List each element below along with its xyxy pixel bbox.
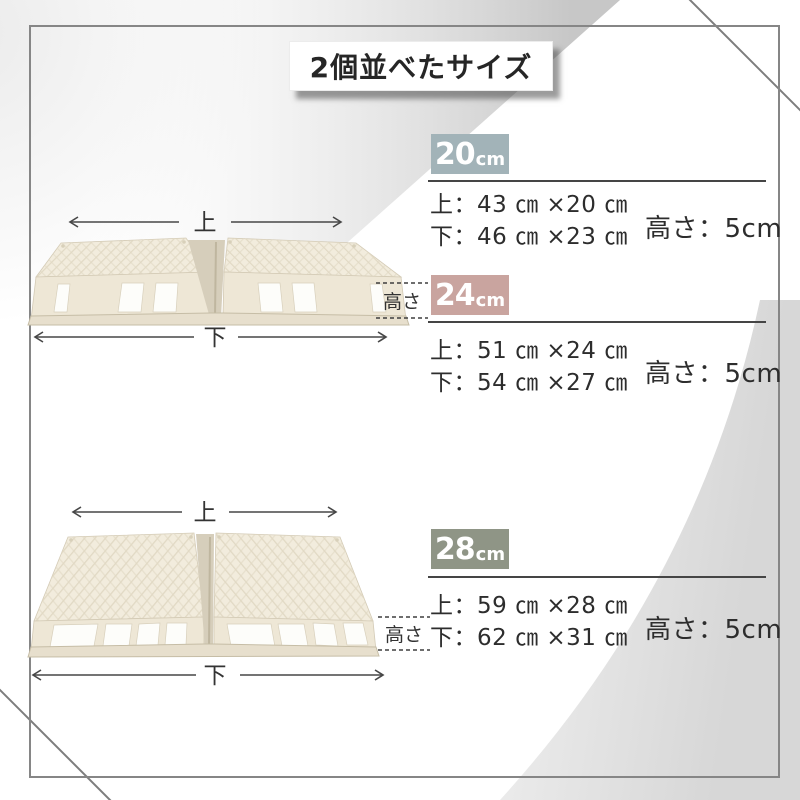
height-text-28cm: 高さ：5cm: [645, 609, 782, 646]
top-dimension-text: 上：51 ㎝ ×24 ㎝: [430, 335, 628, 367]
title-box: 2個並べたサイズ: [289, 41, 553, 91]
height-marker: 高さ: [378, 617, 430, 650]
top-dimension-arrow: 上: [70, 210, 341, 236]
top-dimension-text: 上：59 ㎝ ×28 ㎝: [430, 590, 628, 622]
dimensions-20cm: 上：43 ㎝ ×20 ㎝ 下：46 ㎝ ×23 ㎝: [430, 189, 628, 253]
badge-number: 20: [435, 140, 475, 170]
product-diagram-large: 上 高さ: [26, 495, 432, 713]
top-dimension-arrow: 上: [73, 500, 336, 526]
size-badge-20cm: 20cm: [431, 134, 509, 174]
section-divider: [428, 321, 766, 323]
height-text-20cm: 高さ：5cm: [645, 208, 782, 245]
product-diagram-small: 上 高さ 下: [26, 198, 432, 350]
badge-number: 28: [435, 535, 475, 565]
bottom-dimension-text: 下：62 ㎝ ×31 ㎝: [430, 622, 628, 654]
dimensions-28cm: 上：59 ㎝ ×28 ㎝ 下：62 ㎝ ×31 ㎝: [430, 590, 628, 654]
dimensions-24cm: 上：51 ㎝ ×24 ㎝ 下：54 ㎝ ×27 ㎝: [430, 335, 628, 399]
top-label: 上: [194, 210, 217, 236]
pallet-pair-illustration: [28, 533, 379, 657]
badge-number: 24: [435, 281, 475, 311]
top-dimension-text: 上：43 ㎝ ×20 ㎝: [430, 189, 628, 221]
bottom-dimension-text: 下：46 ㎝ ×23 ㎝: [430, 221, 628, 253]
badge-unit: cm: [476, 151, 505, 169]
height-label: 高さ: [385, 624, 423, 646]
bottom-dimension-arrow: 下: [35, 325, 386, 350]
badge-unit: cm: [476, 292, 505, 310]
badge-unit: cm: [476, 546, 505, 564]
bottom-dimension-arrow: 下: [33, 663, 383, 689]
bottom-dimension-text: 下：54 ㎝ ×27 ㎝: [430, 367, 628, 399]
size-badge-24cm: 24cm: [431, 275, 509, 315]
bottom-label: 下: [204, 663, 227, 689]
section-divider: [428, 576, 766, 578]
section-divider: [428, 180, 766, 182]
bottom-label: 下: [204, 325, 227, 350]
page-title: 2個並べたサイズ: [310, 46, 533, 86]
top-label: 上: [194, 500, 217, 526]
infographic-page: { "page": { "title": "2個並べたサイズ" }, "sect…: [0, 0, 800, 800]
size-badge-28cm: 28cm: [431, 529, 509, 569]
pallet-pair-illustration: [28, 238, 409, 325]
height-text-24cm: 高さ：5cm: [645, 353, 782, 390]
height-label: 高さ: [383, 291, 421, 313]
